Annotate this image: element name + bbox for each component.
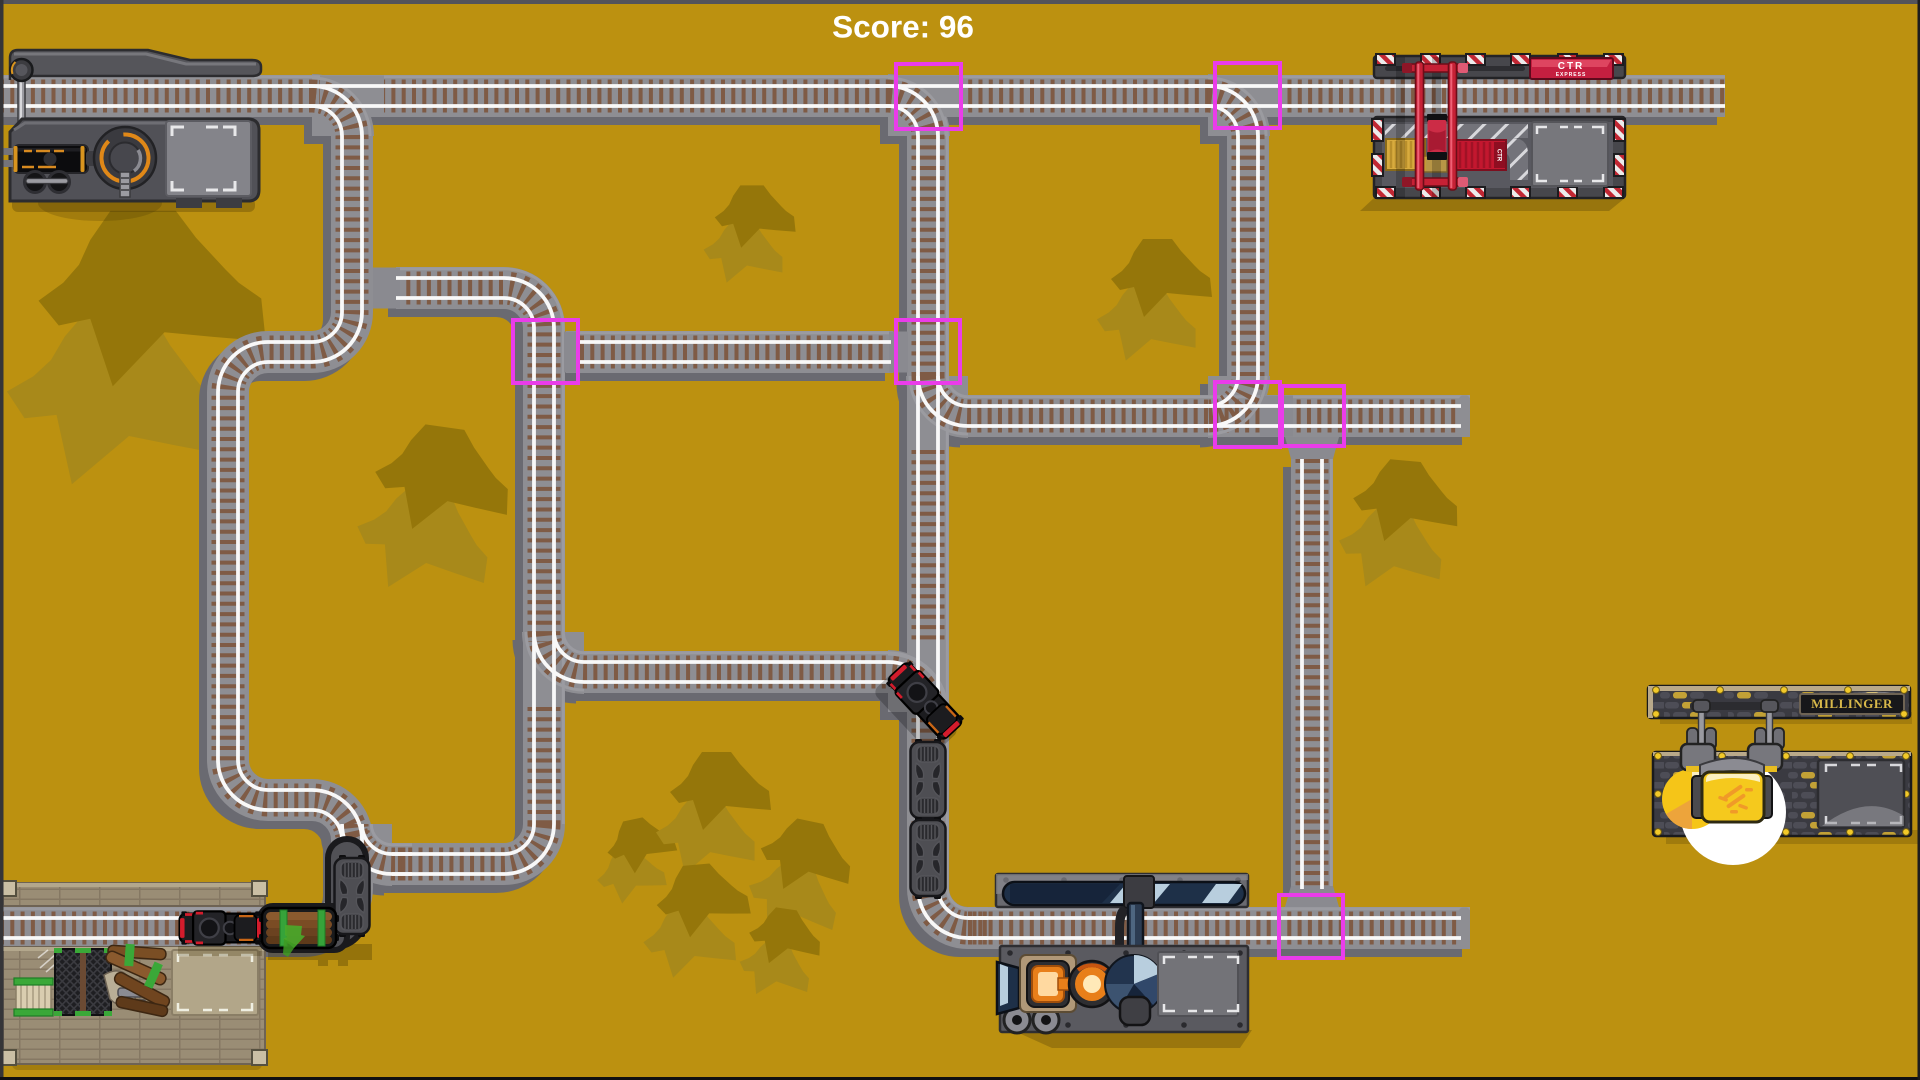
svg-text:Score: 96: Score: 96 [832, 9, 974, 45]
svg-text:CTR: CTR [1558, 61, 1585, 72]
svg-text:CTR: CTR [1496, 149, 1502, 162]
svg-text:EXPRESS: EXPRESS [1556, 72, 1587, 78]
svg-text:MILLINGER: MILLINGER [1811, 696, 1893, 711]
